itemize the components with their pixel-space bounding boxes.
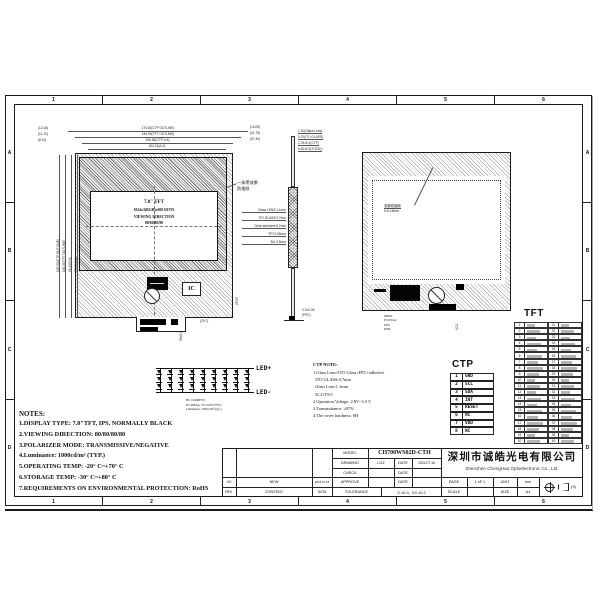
dim-label: (16.05) xyxy=(250,126,260,130)
led-symbol xyxy=(234,377,238,381)
ctp-pin-name: GND xyxy=(463,373,494,381)
model-value: CH700WS02D-CTH xyxy=(368,448,441,458)
ctp-note-line: Glass Lens:1.1mm xyxy=(313,383,384,390)
led-symbol xyxy=(245,377,249,381)
zone-number: 1 xyxy=(5,95,103,104)
display-viewing-direction-text: VIEWING DIRECTION xyxy=(94,214,214,220)
alignment-hole xyxy=(144,288,160,304)
company-name-en: Shenzhen ChengHao Optoelectronic Co., Lt… xyxy=(441,464,583,472)
led-symbol xyxy=(201,377,205,381)
tft-pin-name-smudge xyxy=(527,379,535,382)
tft-pin-name-smudge xyxy=(561,391,570,394)
rev-label: REV. xyxy=(222,487,236,497)
side-view-stack xyxy=(288,187,298,268)
layer-label: ITO GLASS:0.7mm xyxy=(242,216,286,221)
tft-pin-name-smudge xyxy=(527,422,543,425)
back-small-dash xyxy=(374,289,386,292)
ctp-pin-name: SDA xyxy=(463,389,494,397)
dim-label: 85.92(A.A) xyxy=(75,257,79,272)
tft-pin-row: 20 xyxy=(514,438,548,444)
tft-pin-name xyxy=(525,438,548,444)
ctp-pin-row: 1GND xyxy=(450,373,494,381)
zone-strip-right: ABCD xyxy=(583,104,592,497)
back-hole xyxy=(428,287,445,304)
back-view-tape-outline xyxy=(372,180,501,280)
ctp-pin-name: VDD xyxy=(463,420,494,428)
display-angles-text: 80/80/80/80 xyxy=(94,220,214,226)
model-label: MODEL xyxy=(332,448,368,458)
zone-letter: A xyxy=(583,104,592,203)
back-dim-side: 10.2 xyxy=(456,324,460,330)
tft-pin-name-smudge xyxy=(527,361,538,364)
tft-pin-name-smudge xyxy=(561,416,572,419)
zone-number: 5 xyxy=(397,95,495,104)
dim-label: 156.96(CTP V.A) xyxy=(82,139,233,143)
ctp-note-line: 4.The cover hardness: 6H xyxy=(313,412,384,419)
zone-strip-left: ABCD xyxy=(5,104,14,497)
note-line: 7.REQUIREMENTS ON ENVIRONMENTAL PROTECTI… xyxy=(19,484,208,495)
ctp-pin-row: 5RESET xyxy=(450,404,494,412)
back-square-pad xyxy=(456,284,464,290)
tft-pin-name-smudge xyxy=(527,404,537,407)
content-label: CONTENT xyxy=(236,487,312,497)
led-symbol xyxy=(245,384,249,388)
tft-pin-table-right: 2122232425262728293031323334353637383940 xyxy=(548,322,582,444)
ctp-pin-row: 6NC xyxy=(450,412,494,420)
dim-label: 105.50(CTP OUTLINE) xyxy=(57,239,61,272)
led-rail-cathode xyxy=(156,392,254,393)
dim-label: (8.10) xyxy=(38,139,46,143)
check-date-label: DATE xyxy=(394,468,412,477)
ctp-pin-number: 2 xyxy=(450,381,463,389)
page-value: 1 oF 1 xyxy=(467,477,493,487)
led-symbol xyxy=(168,370,172,374)
front-view-centerline-h xyxy=(86,226,222,227)
note-line: 2.VIEWING DIRECTION: 80/80/80/80 xyxy=(19,430,208,441)
zone-letter: D xyxy=(583,400,592,498)
tft-pin-name-smudge xyxy=(561,428,573,431)
tft-pin-name-smudge xyxy=(561,330,574,333)
tft-pin-name-smudge xyxy=(527,440,540,443)
led-symbol xyxy=(201,370,205,374)
ctp-pin-number: 8 xyxy=(450,427,463,435)
tolerance-value: .X ±0.3, .XX ±0.2 xyxy=(381,487,441,497)
ctp-pin-name: SCL xyxy=(463,381,494,389)
ctp-pin-row: 7VDD xyxy=(450,420,494,428)
led-symbol xyxy=(212,370,216,374)
serial-label-text-mark xyxy=(150,283,164,284)
dim-label: 91.44(V.A) xyxy=(69,257,73,272)
tft-pin-name-smudge xyxy=(561,404,571,407)
led-symbol xyxy=(190,377,194,381)
tft-pin-name-smudge xyxy=(527,349,537,352)
display-size-text: 7.0" TFT xyxy=(94,199,214,206)
led-anode-label: LED+ xyxy=(256,365,271,372)
led-symbol xyxy=(179,370,183,374)
tft-pin-name-smudge xyxy=(527,337,536,340)
tft-pin-name-smudge xyxy=(561,355,576,358)
tft-pin-name-smudge xyxy=(561,361,572,364)
ctp-note-line: 3.Transmittance: ≥87% xyxy=(313,405,384,412)
dim-label: (57.40) xyxy=(250,138,260,142)
paper-bottom-edge xyxy=(5,509,593,511)
tft-pin-name-smudge xyxy=(527,410,542,413)
tft-pin-name-smudge xyxy=(561,379,569,382)
zone-number: 6 xyxy=(495,95,592,104)
ctp-pin-row: 3SDA xyxy=(450,389,494,397)
check-label: CHECK xyxy=(332,468,368,477)
ctp-pin-name: RESET xyxy=(463,404,494,412)
led-symbol xyxy=(234,384,238,388)
projection-note: (3) xyxy=(571,484,576,489)
drawing-date-value: 2024.07.16 xyxy=(412,458,441,468)
tft-pin-name-smudge xyxy=(561,385,574,388)
led-symbol xyxy=(190,370,194,374)
zone-strip-bottom: 123456 xyxy=(5,497,592,506)
tft-pin-name-smudge xyxy=(561,410,576,413)
side-view-fpc-block xyxy=(289,316,295,320)
zone-letter: B xyxy=(583,203,592,302)
dim-label: 0.70(ITO GLASS) xyxy=(298,135,323,140)
led-symbol xyxy=(157,370,161,374)
dim-line xyxy=(77,155,78,318)
side-view-top-glass xyxy=(291,136,295,187)
unit-value: mm xyxy=(517,477,539,487)
tft-pin-table-left: 1234567891011121314151617181920 xyxy=(514,322,548,444)
tft-pin-name-smudge xyxy=(527,355,542,358)
size-value: A4 xyxy=(517,487,539,497)
tft-pin-name-smudge xyxy=(527,391,536,394)
ctp-pin-row: 2SCL xyxy=(450,381,494,389)
ctp-note-line: ITO GLASS:0.7mm xyxy=(313,376,384,383)
drawing-sheet: 123456 123456 ABCD ABCD 7.0" TFT 1024x3(… xyxy=(0,0,600,600)
notes-lines: 1.DISPLAY TYPE: 7.0"TFT, IPS, NORMALLY B… xyxy=(19,419,208,495)
backlight-note-line: Luminance: 1000cd/m²(typ.) xyxy=(186,407,222,412)
size-label: SIZE xyxy=(493,487,517,497)
led-symbol xyxy=(223,384,227,388)
tft-pin-name-smudge xyxy=(527,330,540,333)
ctp-pin-row: 8NC xyxy=(450,427,494,435)
drawing-by: LGZ xyxy=(368,458,394,468)
note-line: 3.POLARIZER MODE: TRANSMISSIVE/NEGATIVE xyxy=(19,441,208,452)
ctp-pin-number: 7 xyxy=(450,420,463,428)
zone-letter: A xyxy=(5,104,14,203)
note-line: 6.STORAGE TEMP: -30° C~+80° C xyxy=(19,473,208,484)
dim-label: 100.00(TFT OUTLINE) xyxy=(63,240,67,272)
ctp-pin-number: 3 xyxy=(450,389,463,397)
paper-right-edge xyxy=(592,96,593,510)
tft-pin-name-smudge xyxy=(561,398,575,401)
tft-pin-name-smudge xyxy=(527,367,543,370)
drawing-date-label: DATE xyxy=(394,458,412,468)
back-serial-label xyxy=(390,285,420,301)
note-line: 5.OPERATING TEMP: -20° C~+70° C xyxy=(19,462,208,473)
dim-label: 170.40(CTP OUTLINE) xyxy=(68,127,248,131)
ctp-note-line: 1.Glass Lens+ITO Glass+FPC+adhesive xyxy=(313,369,384,376)
side-view-bottom xyxy=(291,268,295,320)
tb-line xyxy=(539,477,540,497)
side-view-foot-line xyxy=(284,320,304,321)
tft-pin-name-smudge xyxy=(527,398,541,401)
dim-label: 164.90(TFT OUTLINE) xyxy=(75,133,241,137)
ctp-pin-row: 4INT xyxy=(450,396,494,404)
led-symbol xyxy=(212,377,216,381)
dim-label: (13.16) xyxy=(38,127,48,131)
data-label: DATA xyxy=(312,487,332,497)
tft-pin-name-smudge xyxy=(561,440,574,443)
zone-number: 2 xyxy=(103,497,201,506)
ctp-pin-number: 1 xyxy=(450,373,463,381)
ctp-note-line: 2.Operation Voltage: 2.8V~3.3 V xyxy=(313,398,384,405)
layer-label: Glass LENS:1.1mm xyxy=(242,208,286,213)
dim-label: 154.21(A.A) xyxy=(88,145,226,149)
dim-label: 1.10(Glass Lens) xyxy=(298,129,322,134)
led-symbol xyxy=(168,384,172,388)
tft-pin-name-smudge xyxy=(527,324,535,327)
front-dim-bottom-rot: 30±0.5 xyxy=(180,331,184,341)
company-name-cn: 深圳市诚皓光电有限公司 xyxy=(441,449,583,464)
tft-pin-number: 40 xyxy=(548,438,559,444)
rev-value: V0 xyxy=(222,477,236,487)
tft-pin-number: 20 xyxy=(514,438,525,444)
led-symbol xyxy=(245,370,249,374)
zone-number: 6 xyxy=(495,497,592,506)
led-cathode-label: LED- xyxy=(256,389,271,396)
zone-number: 2 xyxy=(103,95,201,104)
zone-letter: D xyxy=(5,400,14,498)
ctp-table-title: CTP xyxy=(452,359,474,370)
fpc-contact-bar-1 xyxy=(140,319,166,325)
zone-letter: B xyxy=(5,203,14,302)
ic-box: IC xyxy=(182,282,201,296)
ctp-pin-name: NC xyxy=(463,412,494,420)
ctp-pin-number: 5 xyxy=(450,404,463,412)
ctp-note-title: CTP NOTE: xyxy=(313,362,338,367)
page-label: PAGE xyxy=(441,477,467,487)
dim-label: PIN1 xyxy=(384,327,391,331)
dim-label: (11.10) xyxy=(38,133,48,137)
ctp-pin-number: 6 xyxy=(450,412,463,420)
ctp-pin-name: INT xyxy=(463,396,494,404)
tft-pin-name-smudge xyxy=(527,434,535,437)
bezel-callout-line2: 防指纹 xyxy=(237,186,250,192)
tft-pin-name-smudge xyxy=(527,428,539,431)
dim-label: 1.76±0.1(CTP) xyxy=(298,141,319,146)
tft-pin-name-smudge xyxy=(561,337,570,340)
layer-label: B/L:2.5mm xyxy=(242,240,286,245)
tft-pin-name-smudge xyxy=(527,385,540,388)
back-label-line2: t=0.15mm xyxy=(384,209,399,213)
dim-line xyxy=(88,149,226,150)
fpc-contact-bar-2 xyxy=(140,327,158,332)
rev-content-value: NEW xyxy=(236,477,312,487)
tft-pin-name-smudge xyxy=(561,434,569,437)
display-resolution-text: 1024x3(RGB)x600 DOTS xyxy=(94,207,214,213)
tft-pin-name-smudge xyxy=(561,373,573,376)
zone-number: 4 xyxy=(299,95,397,104)
led-symbol xyxy=(212,384,216,388)
zone-letter: C xyxy=(583,301,592,400)
scale-label: SCALE xyxy=(441,487,467,497)
back-connector-bar xyxy=(429,304,456,310)
zone-strip-top: 123456 xyxy=(5,95,592,104)
ctp-pin-name: NC xyxy=(463,427,494,435)
drawing-label: DRAWING xyxy=(332,458,368,468)
dim-line xyxy=(71,155,72,318)
tft-pin-name-smudge xyxy=(527,343,541,346)
led-symbol xyxy=(179,377,183,381)
note-line: 1.DISPLAY TYPE: 7.0"TFT, IPS, NORMALLY B… xyxy=(19,419,208,430)
led-symbol xyxy=(157,377,161,381)
zone-number: 3 xyxy=(201,497,299,506)
tft-pin-name-smudge xyxy=(527,416,538,419)
zone-number: 3 xyxy=(201,95,299,104)
fpc-contact-bar-3 xyxy=(171,319,178,325)
layer-label: TFT:2.05mm xyxy=(242,232,286,237)
tft-pin-name-smudge xyxy=(527,373,539,376)
tft-pin-name-smudge xyxy=(561,343,575,346)
tft-table-title: TFT xyxy=(524,308,544,319)
unit-label: UNIT xyxy=(493,477,517,487)
approve-label: APPROVE xyxy=(332,477,368,487)
tft-pin-name xyxy=(559,438,582,444)
layer-label: Clear adhesive:0.2mm xyxy=(242,224,286,229)
rev-date-value: 2024.07.16 xyxy=(312,477,332,487)
projection-symbol-circle xyxy=(545,483,554,492)
dim-line xyxy=(59,155,60,318)
zone-letter: C xyxy=(5,301,14,400)
approve-date-label: DATE xyxy=(394,477,412,487)
tolerance-label: TOLERANCE xyxy=(332,487,381,497)
zone-number: 1 xyxy=(5,497,103,506)
tft-pin-row: 40 xyxy=(548,438,582,444)
ctp-note-line: IC:GT911 xyxy=(313,391,384,398)
led-symbol xyxy=(223,370,227,374)
zone-number: 4 xyxy=(299,497,397,506)
dim-label: 5.50±0.3(TOTAL) xyxy=(298,147,322,152)
tft-pin-name-smudge xyxy=(561,349,571,352)
led-symbol xyxy=(157,384,161,388)
tft-pin-name-smudge xyxy=(561,422,577,425)
led-symbol xyxy=(201,384,205,388)
led-symbol xyxy=(190,384,194,388)
ctp-note-lines: 1.Glass Lens+ITO Glass+FPC+adhesive ITO … xyxy=(313,369,384,419)
led-symbol xyxy=(223,377,227,381)
tft-pin-name-smudge xyxy=(561,367,577,370)
led-symbol xyxy=(179,384,183,388)
led-symbol xyxy=(168,377,172,381)
zone-number: 5 xyxy=(397,497,495,506)
led-symbol xyxy=(234,370,238,374)
dim-label: (21.75) xyxy=(250,132,260,136)
front-dim-right-rot: 25.95 xyxy=(236,297,240,305)
ctp-pin-table: 1GND2SCL3SDA4INT5RESET6NC7VDD8NC xyxy=(450,373,494,435)
tft-pin-name-smudge xyxy=(561,324,569,327)
notes-title: NOTES: xyxy=(19,410,45,418)
note-line: 4.Luminance: 1000cd/m² (TYP.) xyxy=(19,451,208,462)
backlight-note: BL CURRENT:IF=300mA, VF=9.6V(TYP.)Lumina… xyxy=(186,398,222,412)
ctp-pin-number: 4 xyxy=(450,396,463,404)
dim-line xyxy=(65,155,66,318)
front-dim-bottom: (29.7) xyxy=(200,320,208,324)
dim-label: (FPC) xyxy=(302,314,311,318)
